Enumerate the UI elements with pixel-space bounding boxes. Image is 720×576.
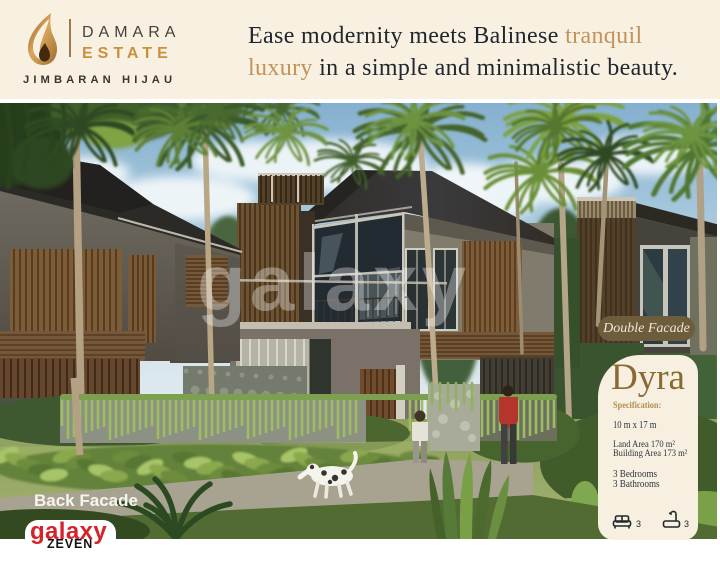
svg-text:galaxy: galaxy	[197, 238, 470, 327]
